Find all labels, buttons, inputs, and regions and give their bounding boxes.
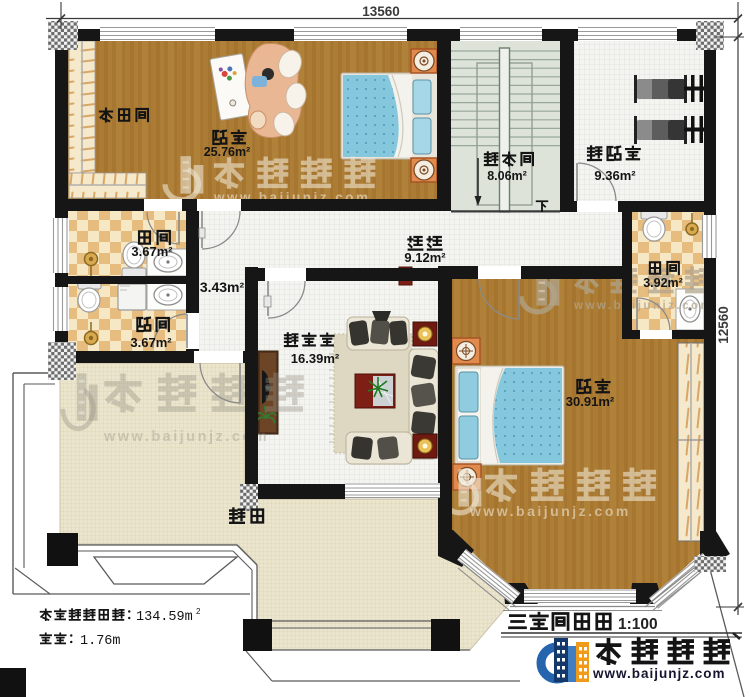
svg-text:3.92m²: 3.92m² — [643, 276, 683, 290]
svg-text:16.39m²: 16.39m² — [291, 351, 340, 366]
svg-text:12560: 12560 — [716, 306, 731, 344]
svg-text:25.76m²: 25.76m² — [204, 145, 251, 159]
svg-text:1:100: 1:100 — [618, 616, 658, 633]
svg-text:www.baijunjz.com: www.baijunjz.com — [103, 429, 269, 445]
svg-text:www.baijunjz.com: www.baijunjz.com — [573, 300, 713, 312]
svg-text:9.36m²: 9.36m² — [594, 168, 636, 183]
svg-text:www.baijunjz.com: www.baijunjz.com — [469, 503, 631, 519]
svg-text:13560: 13560 — [362, 4, 400, 19]
svg-text:3.67m²: 3.67m² — [131, 244, 173, 259]
svg-text:8.06m²: 8.06m² — [487, 169, 527, 183]
svg-text:9.12m²: 9.12m² — [404, 250, 446, 265]
svg-text:30.91m²: 30.91m² — [566, 394, 615, 409]
svg-text:2: 2 — [196, 607, 201, 616]
svg-text:134.59m: 134.59m — [136, 610, 193, 625]
svg-text:3.67m²: 3.67m² — [130, 335, 172, 350]
svg-text:1.76m: 1.76m — [80, 634, 121, 649]
svg-text:www.baijunjz.com: www.baijunjz.com — [592, 666, 726, 681]
svg-text:3.43m²: 3.43m² — [200, 279, 245, 295]
